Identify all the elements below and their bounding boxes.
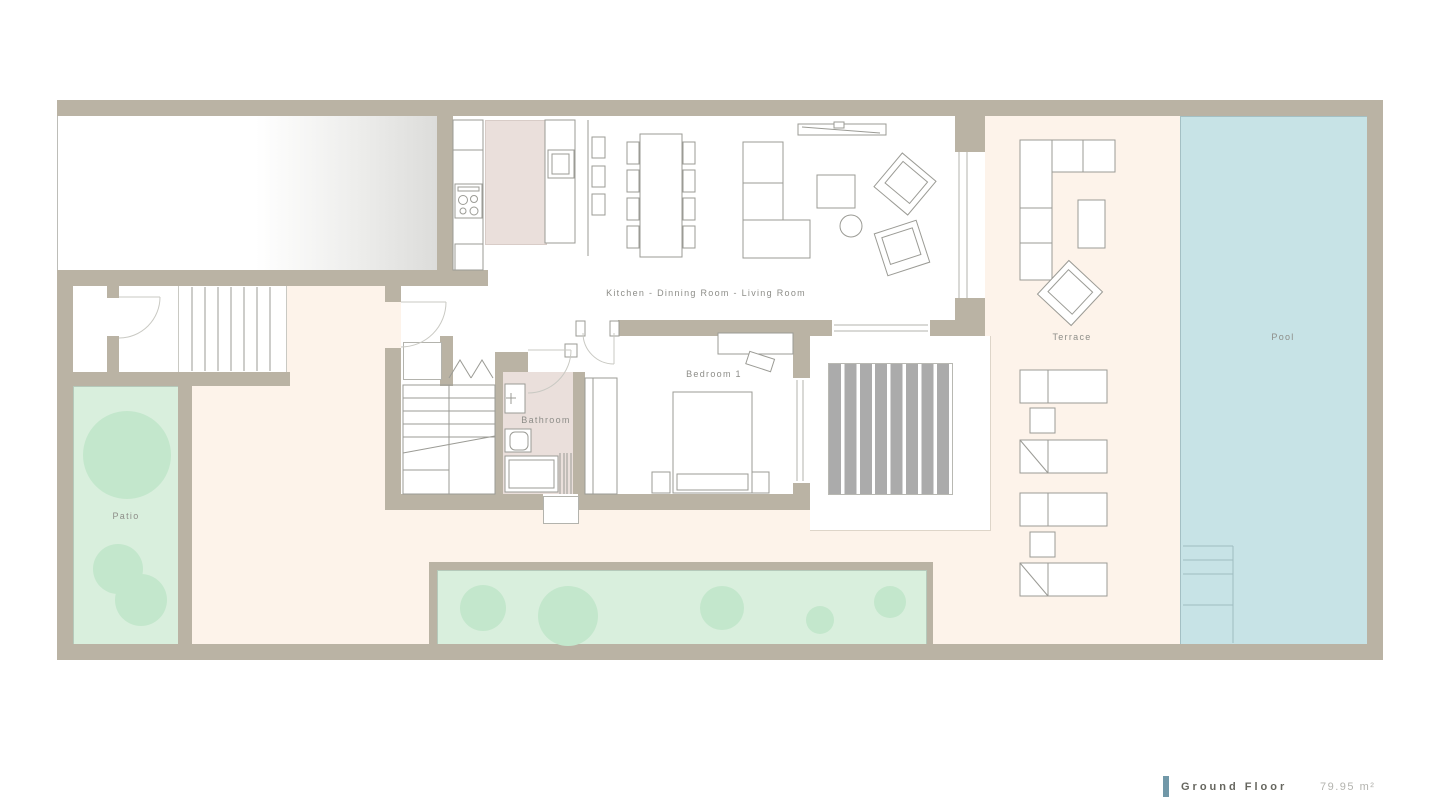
exterior-stairs bbox=[192, 287, 270, 371]
legend-title: Ground Floor bbox=[1181, 781, 1287, 793]
label-bathroom: Bathroom bbox=[521, 415, 570, 425]
floor-plan-page: Kitchen - Dinning Room - Living Room Bed… bbox=[0, 0, 1440, 800]
interior-stairs bbox=[403, 360, 495, 494]
legend-accent-bar bbox=[1163, 776, 1169, 797]
label-terrace: Terrace bbox=[1052, 332, 1091, 342]
kitchen-fixtures bbox=[453, 120, 605, 270]
garden-trees bbox=[460, 585, 906, 646]
door-frames bbox=[565, 321, 619, 357]
plan-linework bbox=[0, 0, 1440, 800]
label-patio: Patio bbox=[112, 511, 139, 521]
terrace-furniture bbox=[1020, 140, 1115, 596]
label-kitchen-living: Kitchen - Dinning Room - Living Room bbox=[606, 288, 806, 298]
legend-area: 79.95 m² bbox=[1320, 781, 1375, 793]
armchair-2 bbox=[874, 220, 929, 275]
pool-steps bbox=[1183, 546, 1233, 643]
label-bedroom: Bedroom 1 bbox=[686, 369, 742, 379]
label-pool: Pool bbox=[1271, 332, 1294, 342]
bedroom-furniture bbox=[585, 333, 793, 494]
dining-set bbox=[627, 134, 695, 257]
armchair-1 bbox=[874, 153, 936, 215]
living-furniture bbox=[743, 122, 936, 276]
door-swings bbox=[119, 297, 614, 393]
bathroom-fixtures bbox=[505, 384, 571, 494]
